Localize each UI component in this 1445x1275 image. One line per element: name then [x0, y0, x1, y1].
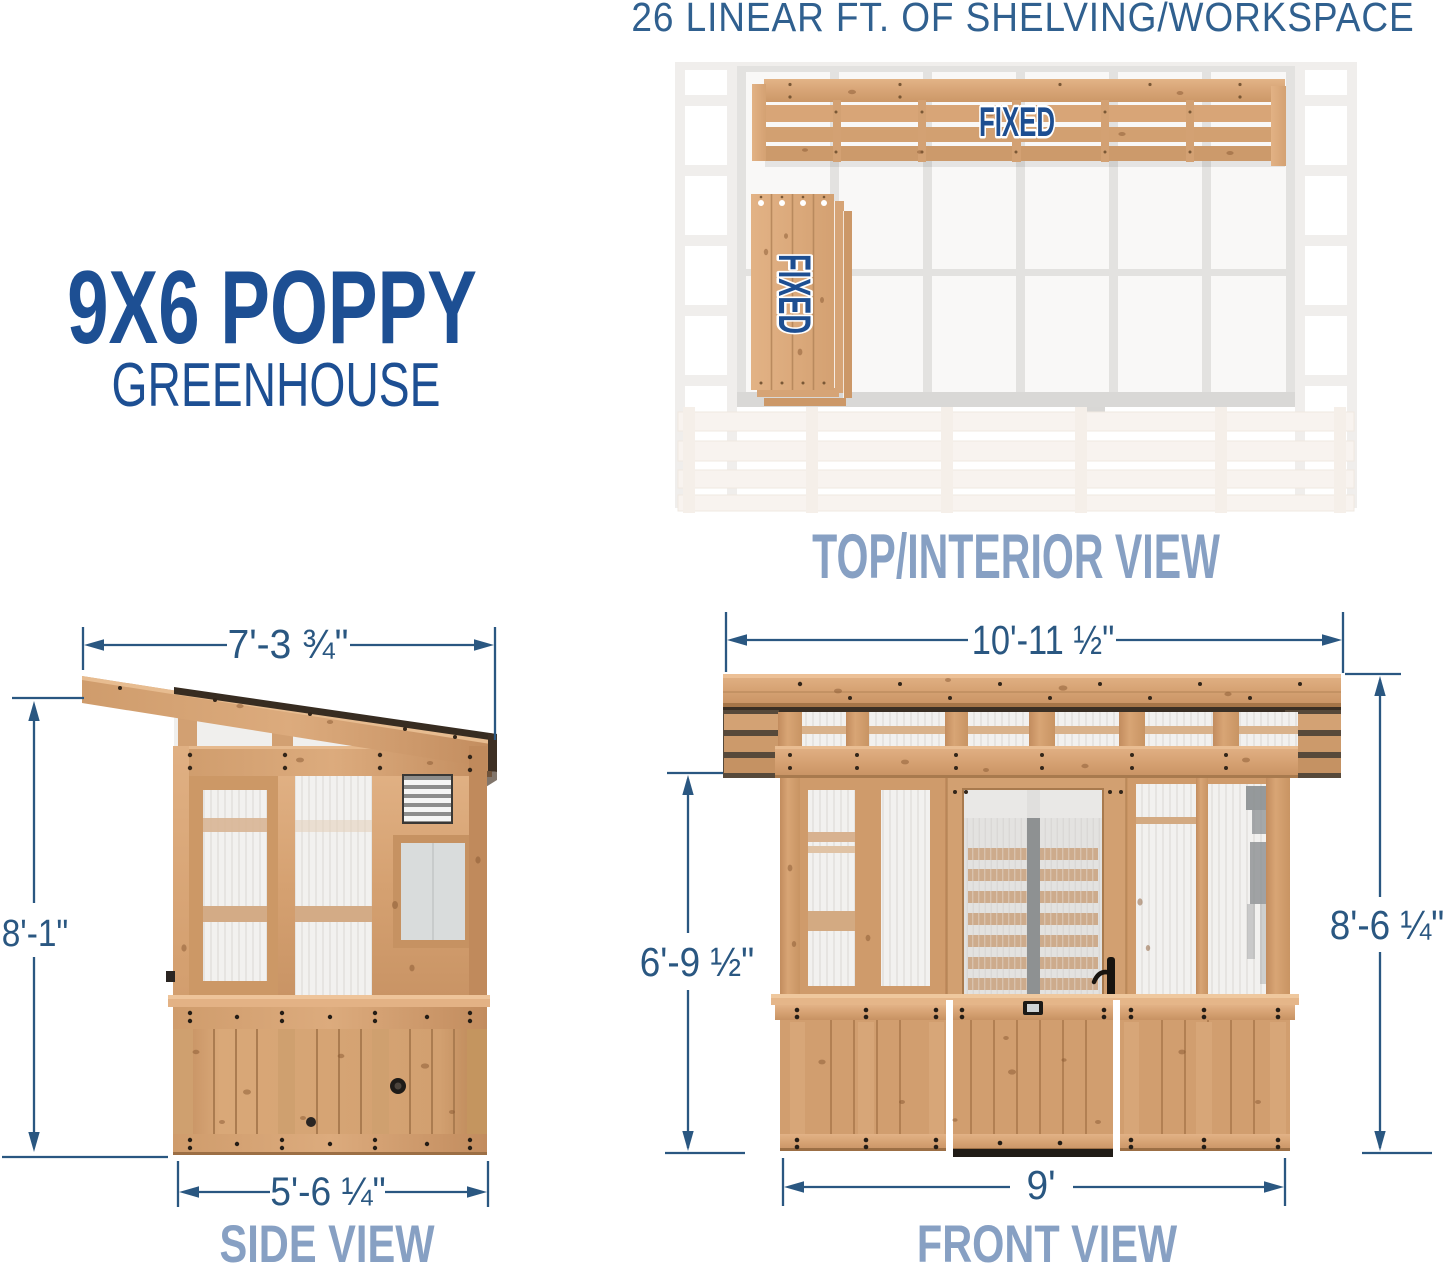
- svg-text:6'-9 ½": 6'-9 ½": [640, 940, 755, 985]
- svg-text:FIXED: FIXED: [769, 254, 820, 334]
- svg-text:FIXED: FIXED: [979, 98, 1055, 145]
- svg-text:8'-1": 8'-1": [2, 912, 69, 954]
- svg-text:7'-3 ¾": 7'-3 ¾": [228, 622, 349, 667]
- svg-text:8'-6 ¼": 8'-6 ¼": [1330, 903, 1445, 948]
- svg-text:10'-11 ½": 10'-11 ½": [972, 618, 1115, 663]
- svg-text:9': 9': [1026, 1163, 1055, 1208]
- svg-text:5'-6 ¼": 5'-6 ¼": [270, 1170, 385, 1215]
